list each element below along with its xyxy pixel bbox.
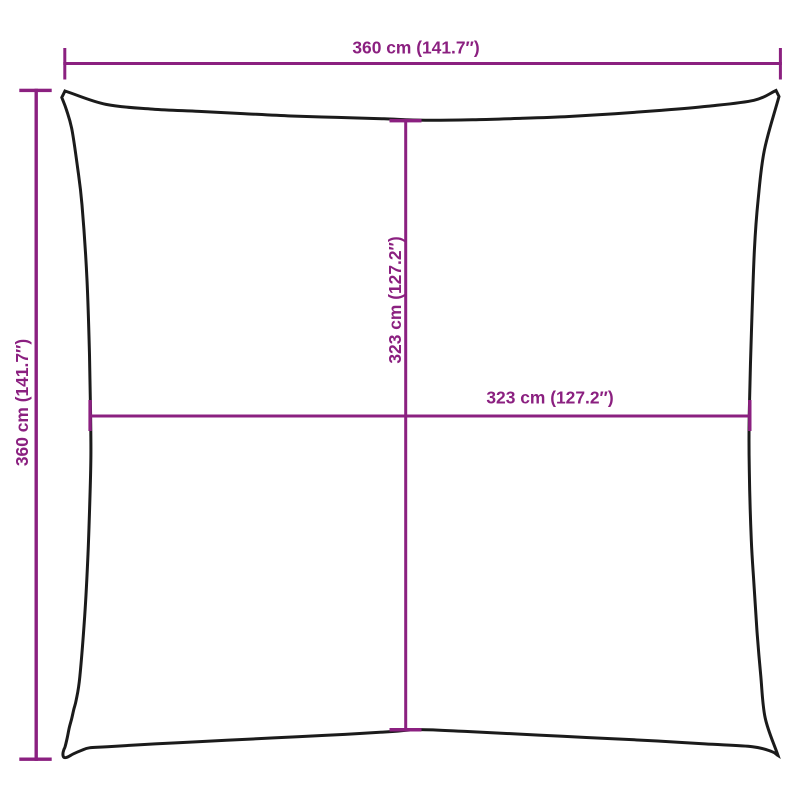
svg-text:323 cm (127.2″): 323 cm (127.2″) bbox=[385, 236, 405, 363]
svg-text:323 cm (127.2″): 323 cm (127.2″) bbox=[486, 388, 613, 408]
svg-text:360 cm (141.7″): 360 cm (141.7″) bbox=[12, 339, 32, 466]
svg-text:360 cm (141.7″): 360 cm (141.7″) bbox=[352, 38, 479, 58]
